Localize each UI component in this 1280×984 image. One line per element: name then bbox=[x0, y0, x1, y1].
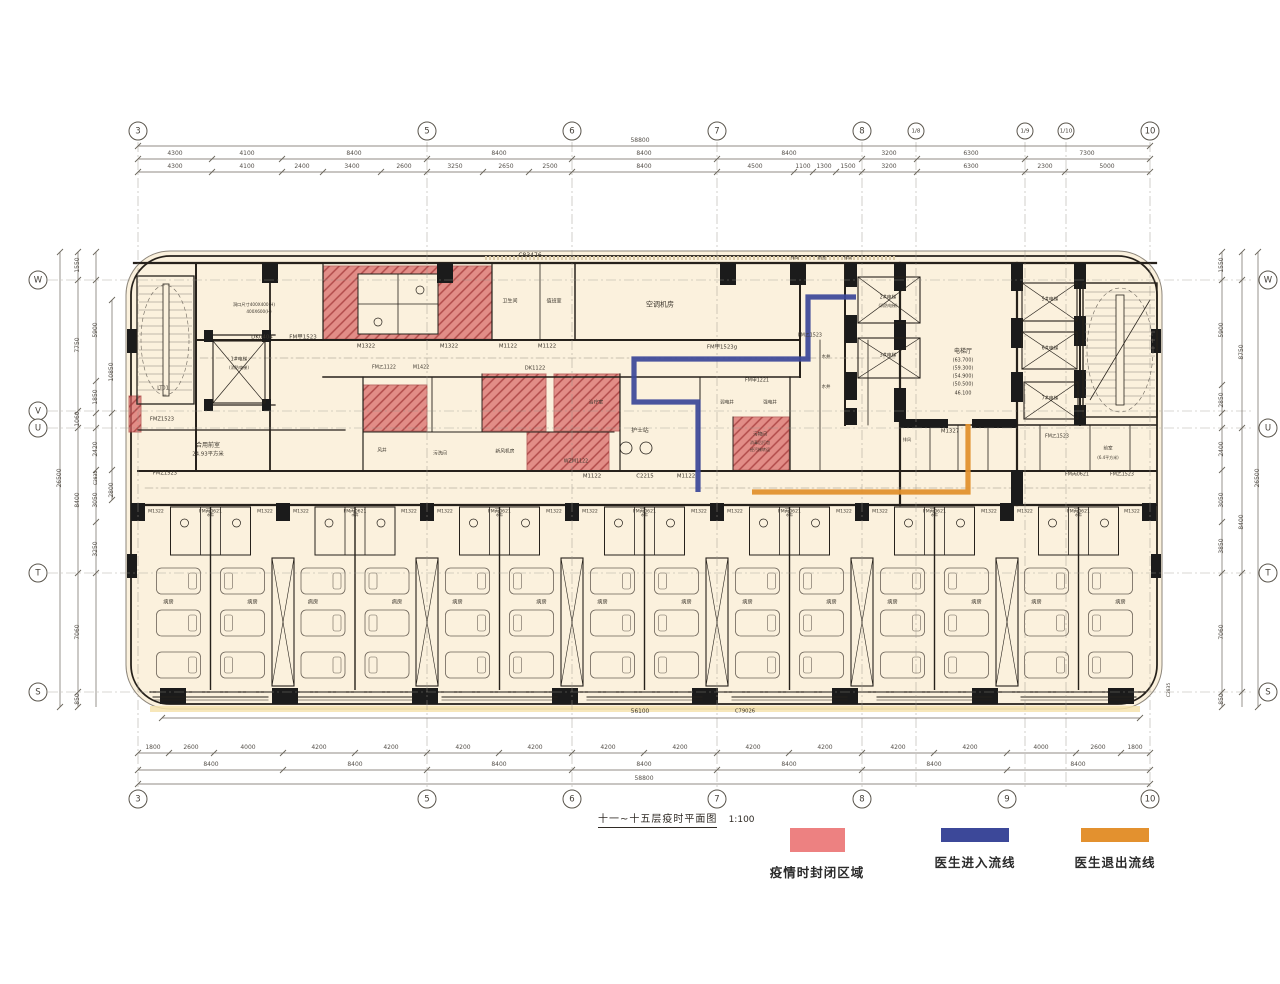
legend-label: 医生进入流线 bbox=[934, 852, 1015, 871]
drawing-scale: 1:100 bbox=[729, 815, 755, 825]
drawing-title: 十一~十五层疫时平面图 1:100 bbox=[598, 810, 755, 825]
entry-flow-swatch bbox=[941, 828, 1009, 842]
closed-zone-swatch bbox=[790, 828, 845, 852]
legend-item-entry-flow: 医生进入流线 bbox=[905, 828, 1045, 871]
floor-plan-page: 356781/81/91/101035678910WVUTSWUTS588004… bbox=[0, 0, 1280, 984]
legend-label: 医生退出流线 bbox=[1074, 852, 1155, 871]
exit-flow-swatch bbox=[1081, 828, 1149, 842]
legend-item-exit-flow: 医生退出流线 bbox=[1045, 828, 1185, 871]
drawing-title-text: 十一~十五层疫时平面图 bbox=[598, 814, 717, 828]
legend-item-closed-zone: 疫情时封闭区域 bbox=[747, 828, 887, 881]
legend-label: 疫情时封闭区域 bbox=[770, 862, 865, 881]
